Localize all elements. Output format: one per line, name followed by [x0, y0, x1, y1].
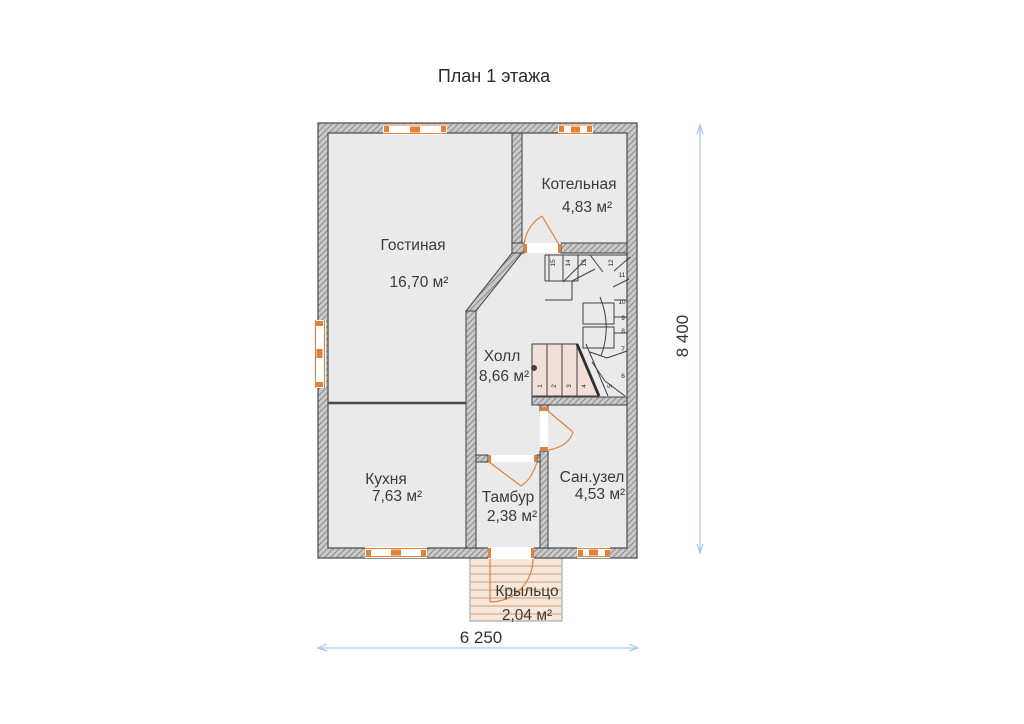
- step-number: 12: [608, 259, 615, 267]
- step-number: 14: [565, 259, 572, 267]
- room-label-porch: Крыльцо: [495, 583, 558, 600]
- step-number: 4: [581, 384, 588, 388]
- floor-plan-page: План 1 этажа: [0, 0, 1024, 724]
- room-label-bathroom: Сан.узел: [560, 469, 625, 486]
- step-number: 7: [621, 346, 625, 353]
- step-number: 11: [619, 272, 626, 279]
- step-number: 13: [581, 259, 588, 267]
- dimension-height-label: 8 400: [673, 315, 692, 358]
- dimension-width-label: 6 250: [460, 628, 503, 647]
- step-number: 8: [621, 328, 625, 335]
- wall-stairs-bathroom: [532, 397, 627, 405]
- page-title: План 1 этажа: [438, 66, 551, 86]
- room-label-kitchen: Кухня: [365, 471, 406, 488]
- window-kitchen-bottom: [365, 547, 427, 558]
- window-boiler-top: [558, 124, 593, 135]
- room-area-bathroom: 4,53 м²: [575, 486, 625, 503]
- wall-hall-kitchen: [466, 311, 476, 548]
- dimension-height: 8 400: [673, 125, 703, 553]
- room-label-tambour: Тамбур: [482, 489, 535, 506]
- window-living-top: [383, 124, 447, 135]
- window-living-left: [314, 320, 326, 388]
- room-area-tambour: 2,38 м²: [487, 508, 537, 525]
- step-number: 2: [551, 384, 558, 388]
- room-label-boiler: Котельная: [541, 176, 616, 193]
- room-area-boiler: 4,83 м²: [562, 199, 612, 216]
- room-area-porch: 2,04 м²: [502, 607, 552, 624]
- wall-tambour-top-left: [476, 455, 488, 462]
- room-area-kitchen: 7,63 м²: [372, 488, 422, 505]
- step-number: 10: [618, 299, 626, 306]
- stair-newel-post: [531, 365, 537, 371]
- wall-tambour-top-right: [537, 455, 540, 462]
- step-number: 15: [550, 259, 557, 267]
- floor-plan-drawing: План 1 этажа: [0, 0, 1024, 724]
- dimension-width: 6 250: [318, 628, 638, 651]
- window-bathroom-bottom: [577, 547, 610, 558]
- room-label-hall: Холл: [484, 348, 521, 365]
- wall-boiler-bottom-right: [561, 243, 627, 253]
- room-label-living: Гостиная: [380, 237, 445, 254]
- step-number: 6: [621, 373, 625, 380]
- wall-tambour-bathroom: [540, 451, 548, 548]
- step-number: 9: [621, 315, 625, 322]
- room-area-hall: 8,66 м²: [479, 368, 529, 385]
- step-number: 5: [607, 384, 614, 388]
- step-number: 3: [566, 384, 573, 388]
- step-number: 1: [537, 384, 544, 388]
- room-area-living: 16,70 м²: [390, 274, 449, 291]
- wall-boiler-bottom-left: [512, 243, 524, 253]
- wall-living-boiler: [512, 133, 522, 253]
